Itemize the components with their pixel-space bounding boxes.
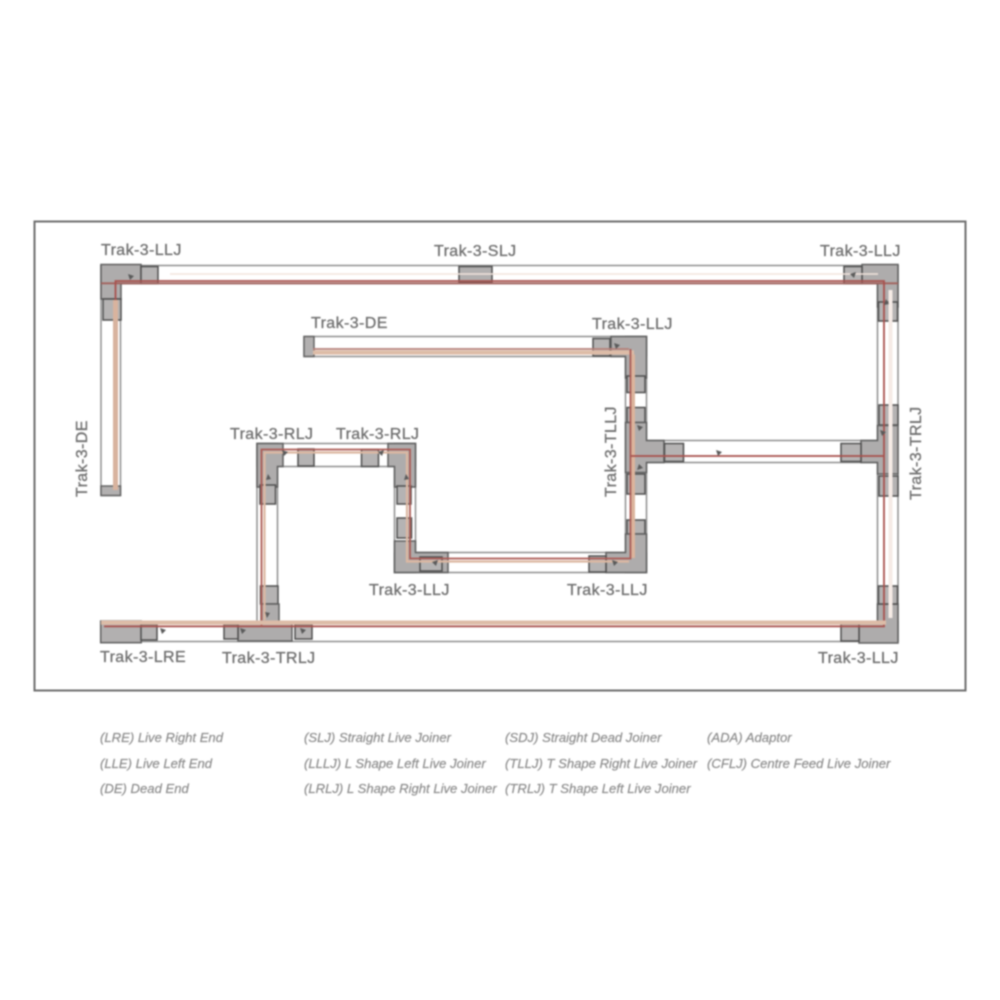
svg-text:(LRE) Live Right End: (LRE) Live Right End: [100, 730, 224, 745]
svg-text:Trak-3-SLJ: Trak-3-SLJ: [434, 243, 517, 260]
svg-text:(TLLJ) T Shape Right Live Join: (TLLJ) T Shape Right Live Joiner: [505, 756, 698, 771]
svg-text:Trak-3-TLLJ: Trak-3-TLLJ: [603, 406, 620, 497]
svg-text:Trak-3-TRLJ: Trak-3-TRLJ: [908, 406, 925, 500]
svg-text:Trak-3-LRE: Trak-3-LRE: [100, 649, 186, 666]
svg-text:(LLE) Live Left End: (LLE) Live Left End: [100, 756, 213, 771]
svg-text:Trak-3-LLJ: Trak-3-LLJ: [818, 650, 899, 667]
svg-text:Trak-3-DE: Trak-3-DE: [74, 420, 91, 497]
svg-text:Trak-3-TRLJ: Trak-3-TRLJ: [222, 650, 316, 667]
svg-text:(SDJ) Straight Dead Joiner: (SDJ) Straight Dead Joiner: [505, 730, 662, 745]
svg-text:Trak-3-LLJ: Trak-3-LLJ: [369, 582, 450, 599]
svg-text:Trak-3-LLJ: Trak-3-LLJ: [567, 582, 648, 599]
svg-text:(ADA) Adaptor: (ADA) Adaptor: [707, 730, 792, 745]
svg-text:Trak-3-LLJ: Trak-3-LLJ: [592, 316, 673, 333]
svg-text:Trak-3-RLJ: Trak-3-RLJ: [336, 426, 419, 443]
svg-text:Trak-3-LLJ: Trak-3-LLJ: [820, 243, 901, 260]
svg-text:(LLLJ) L Shape Left Live Joine: (LLLJ) L Shape Left Live Joiner: [304, 756, 486, 771]
svg-text:(SLJ) Straight Live Joiner: (SLJ) Straight Live Joiner: [304, 730, 452, 745]
svg-text:(DE) Dead End: (DE) Dead End: [100, 781, 190, 796]
svg-text:Trak-3-RLJ: Trak-3-RLJ: [230, 426, 313, 443]
svg-text:Trak-3-LLJ: Trak-3-LLJ: [101, 242, 182, 259]
svg-text:(TRLJ) T Shape Left Live Joine: (TRLJ) T Shape Left Live Joiner: [505, 781, 691, 796]
svg-text:(CFLJ) Centre Feed Live Joiner: (CFLJ) Centre Feed Live Joiner: [707, 756, 891, 771]
svg-text:Trak-3-DE: Trak-3-DE: [311, 315, 388, 332]
svg-text:(LRLJ) L Shape Right Live Join: (LRLJ) L Shape Right Live Joiner: [304, 781, 497, 796]
